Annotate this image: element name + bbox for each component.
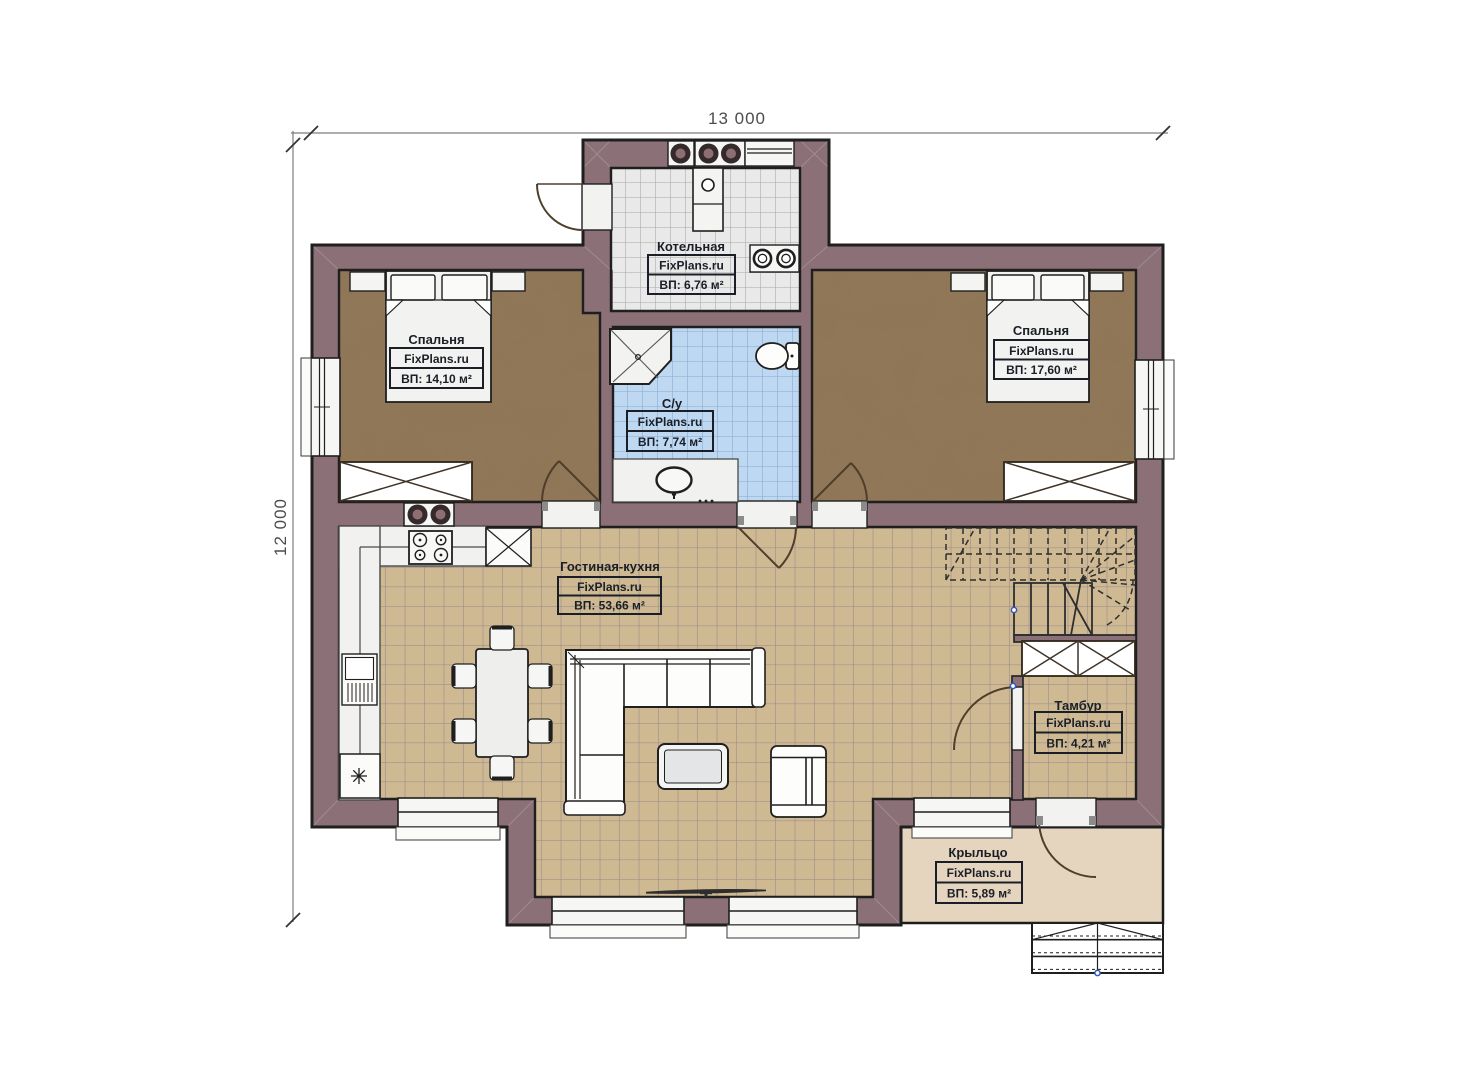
svg-text:FixPlans.ru: FixPlans.ru: [638, 415, 703, 429]
svg-text:ВП: 6,76 м²: ВП: 6,76 м²: [659, 278, 723, 292]
svg-text:ВП: 17,60 м²: ВП: 17,60 м²: [1006, 363, 1077, 377]
svg-text:ВП: 14,10 м²: ВП: 14,10 м²: [401, 372, 472, 386]
svg-text:Тамбур: Тамбур: [1054, 698, 1101, 713]
svg-text:Спальня: Спальня: [1013, 323, 1069, 338]
svg-text:Гостиная-кухня: Гостиная-кухня: [560, 559, 660, 574]
svg-text:Спальня: Спальня: [408, 332, 464, 347]
svg-text:С/у: С/у: [662, 396, 683, 411]
svg-text:FixPlans.ru: FixPlans.ru: [1046, 716, 1111, 730]
svg-text:ВП: 7,74 м²: ВП: 7,74 м²: [638, 435, 702, 449]
svg-text:ВП: 4,21 м²: ВП: 4,21 м²: [1046, 737, 1110, 751]
svg-text:FixPlans.ru: FixPlans.ru: [404, 352, 469, 366]
svg-text:FixPlans.ru: FixPlans.ru: [577, 580, 642, 594]
svg-text:Котельная: Котельная: [657, 239, 725, 254]
svg-text:Крыльцо: Крыльцо: [948, 845, 1007, 860]
svg-text:FixPlans.ru: FixPlans.ru: [947, 866, 1012, 880]
svg-text:13 000: 13 000: [708, 109, 766, 128]
svg-text:12 000: 12 000: [271, 498, 290, 556]
svg-text:ВП: 53,66 м²: ВП: 53,66 м²: [574, 599, 645, 613]
svg-text:FixPlans.ru: FixPlans.ru: [1009, 344, 1074, 358]
svg-text:FixPlans.ru: FixPlans.ru: [659, 259, 724, 273]
svg-text:ВП: 5,89 м²: ВП: 5,89 м²: [947, 887, 1011, 901]
